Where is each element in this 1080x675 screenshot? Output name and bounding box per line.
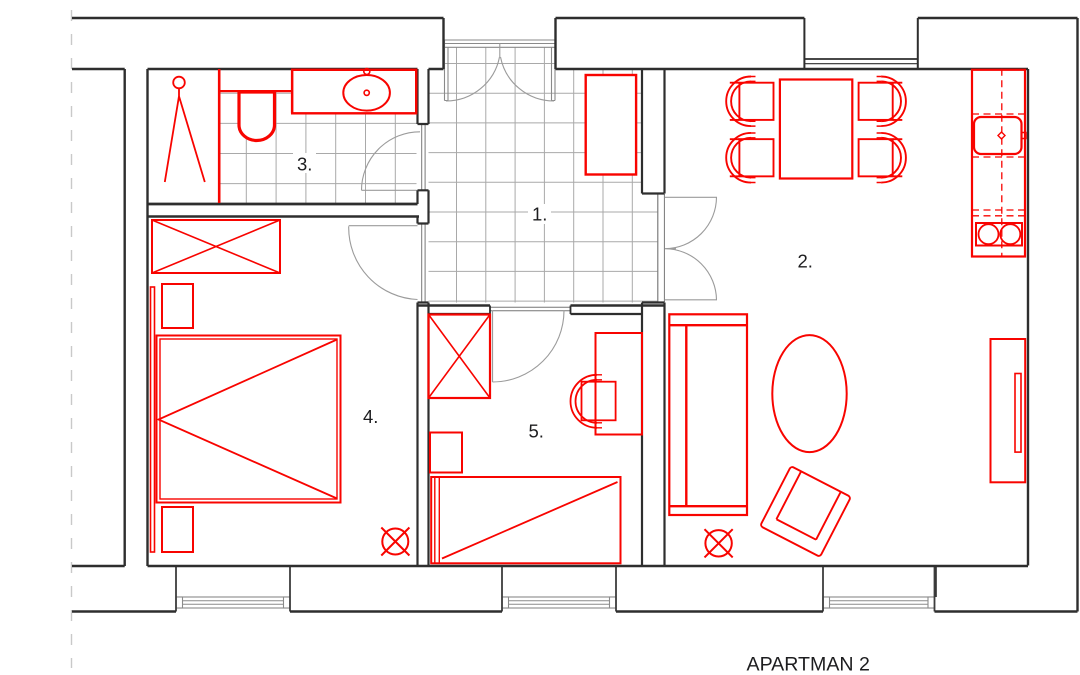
svg-text:1.: 1. <box>532 204 547 225</box>
svg-text:4.: 4. <box>363 406 378 427</box>
svg-text:2.: 2. <box>798 251 813 272</box>
svg-text:3.: 3. <box>297 154 312 175</box>
svg-text:APARTMAN 2: APARTMAN 2 <box>747 654 870 675</box>
svg-text:5.: 5. <box>529 421 544 442</box>
